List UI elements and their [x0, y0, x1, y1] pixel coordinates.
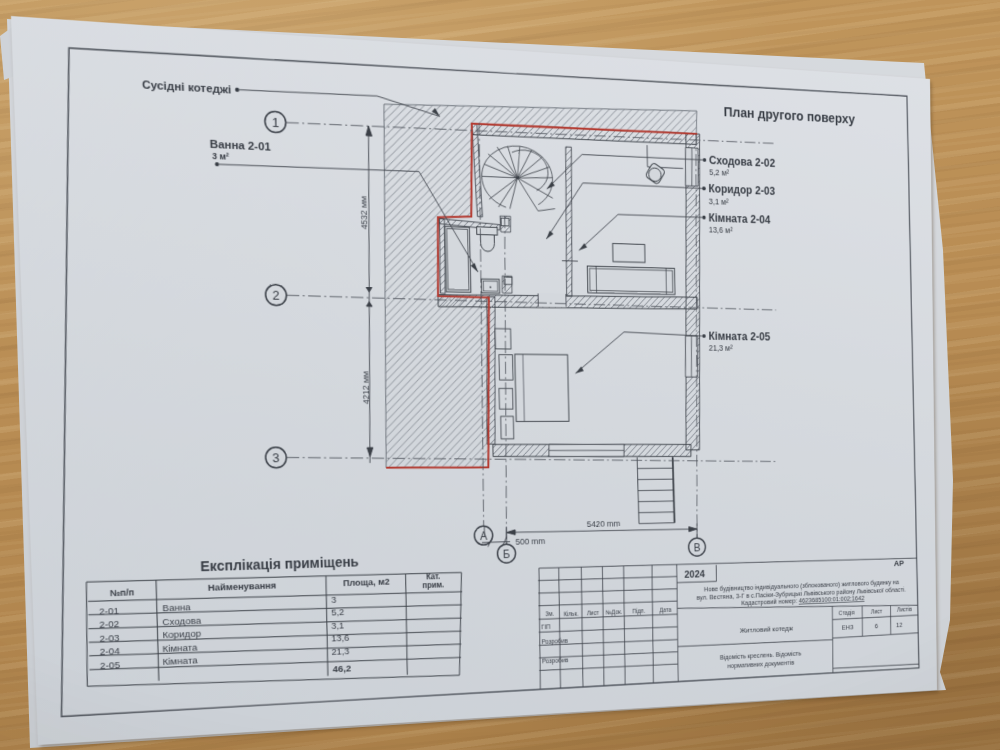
svg-text:2-04: 2-04 — [100, 647, 121, 658]
svg-text:Розробив: Розробив — [542, 657, 569, 666]
svg-text:13,6 м²: 13,6 м² — [709, 226, 733, 236]
svg-text:Кімната 2-05: Кімната 2-05 — [708, 330, 770, 343]
svg-text:Листів: Листів — [897, 607, 912, 614]
svg-text:План другого поверху: План другого поверху — [724, 106, 856, 128]
svg-text:Площа, м2: Площа, м2 — [343, 577, 390, 588]
svg-text:В: В — [694, 541, 701, 554]
svg-text:3 м²: 3 м² — [212, 152, 229, 163]
svg-text:Ванна: Ванна — [162, 603, 191, 614]
svg-text:Лист: Лист — [587, 610, 600, 616]
svg-text:ГІП: ГІП — [541, 623, 550, 631]
svg-text:5,2 м²: 5,2 м² — [709, 168, 729, 178]
svg-text:12: 12 — [896, 621, 903, 628]
svg-text:Експлікація приміщень: Експлікація приміщень — [200, 555, 359, 575]
svg-text:Сусідні котеджі: Сусідні котеджі — [142, 78, 232, 96]
svg-text:прим.: прим. — [422, 581, 444, 591]
svg-text:2: 2 — [272, 288, 280, 303]
svg-text:Кімната: Кімната — [162, 656, 198, 668]
svg-text:АР: АР — [894, 560, 904, 569]
svg-text:№Док.: №Док. — [606, 610, 623, 617]
svg-text:Кімната 2-04: Кімната 2-04 — [708, 211, 771, 226]
svg-text:3: 3 — [272, 450, 280, 465]
svg-text:Зм.: Зм. — [545, 612, 554, 618]
svg-text:Розробив: Розробив — [541, 637, 568, 646]
svg-text:Найменування: Найменування — [208, 582, 277, 594]
svg-text:Стадія: Стадія — [839, 610, 855, 617]
svg-text:21,3: 21,3 — [331, 647, 349, 658]
svg-text:3,1: 3,1 — [331, 621, 344, 631]
svg-text:Коридор: Коридор — [162, 629, 201, 641]
svg-text:46,2: 46,2 — [333, 663, 352, 675]
svg-text:№п/п: №п/п — [110, 588, 135, 599]
svg-text:Дата: Дата — [659, 608, 671, 614]
svg-text:Коридор 2-03: Коридор 2-03 — [708, 182, 775, 198]
svg-text:Кільк.: Кільк. — [564, 610, 579, 617]
svg-text:А: А — [480, 529, 488, 542]
svg-text:6: 6 — [875, 623, 879, 630]
svg-text:13,6: 13,6 — [331, 634, 349, 645]
svg-text:4212 мм: 4212 мм — [361, 371, 372, 404]
svg-text:2-03: 2-03 — [99, 633, 120, 644]
svg-text:Сходова 2-02: Сходова 2-02 — [709, 154, 775, 170]
svg-text:500 mm: 500 mm — [515, 537, 545, 547]
svg-text:5,2: 5,2 — [331, 608, 344, 618]
svg-text:5420 mm: 5420 mm — [587, 520, 620, 530]
svg-text:ЕНЗ: ЕНЗ — [842, 624, 854, 632]
svg-text:Кімната: Кімната — [162, 643, 198, 655]
svg-text:2-01: 2-01 — [99, 606, 120, 617]
svg-text:Б: Б — [503, 547, 510, 560]
svg-text:4532 мм: 4532 мм — [359, 196, 370, 230]
svg-text:Житловий котедж: Житловий котедж — [740, 624, 794, 635]
svg-text:Сходова: Сходова — [162, 616, 201, 628]
svg-text:2-05: 2-05 — [100, 661, 121, 672]
svg-text:Лист: Лист — [871, 608, 883, 615]
svg-text:3,1 м²: 3,1 м² — [709, 197, 729, 207]
svg-text:1: 1 — [272, 114, 280, 129]
svg-text:3: 3 — [331, 595, 337, 605]
svg-text:2024: 2024 — [684, 568, 705, 580]
svg-text:21,3 м²: 21,3 м² — [709, 344, 733, 353]
svg-text:Підп.: Підп. — [632, 608, 645, 615]
svg-text:2-02: 2-02 — [99, 620, 120, 631]
